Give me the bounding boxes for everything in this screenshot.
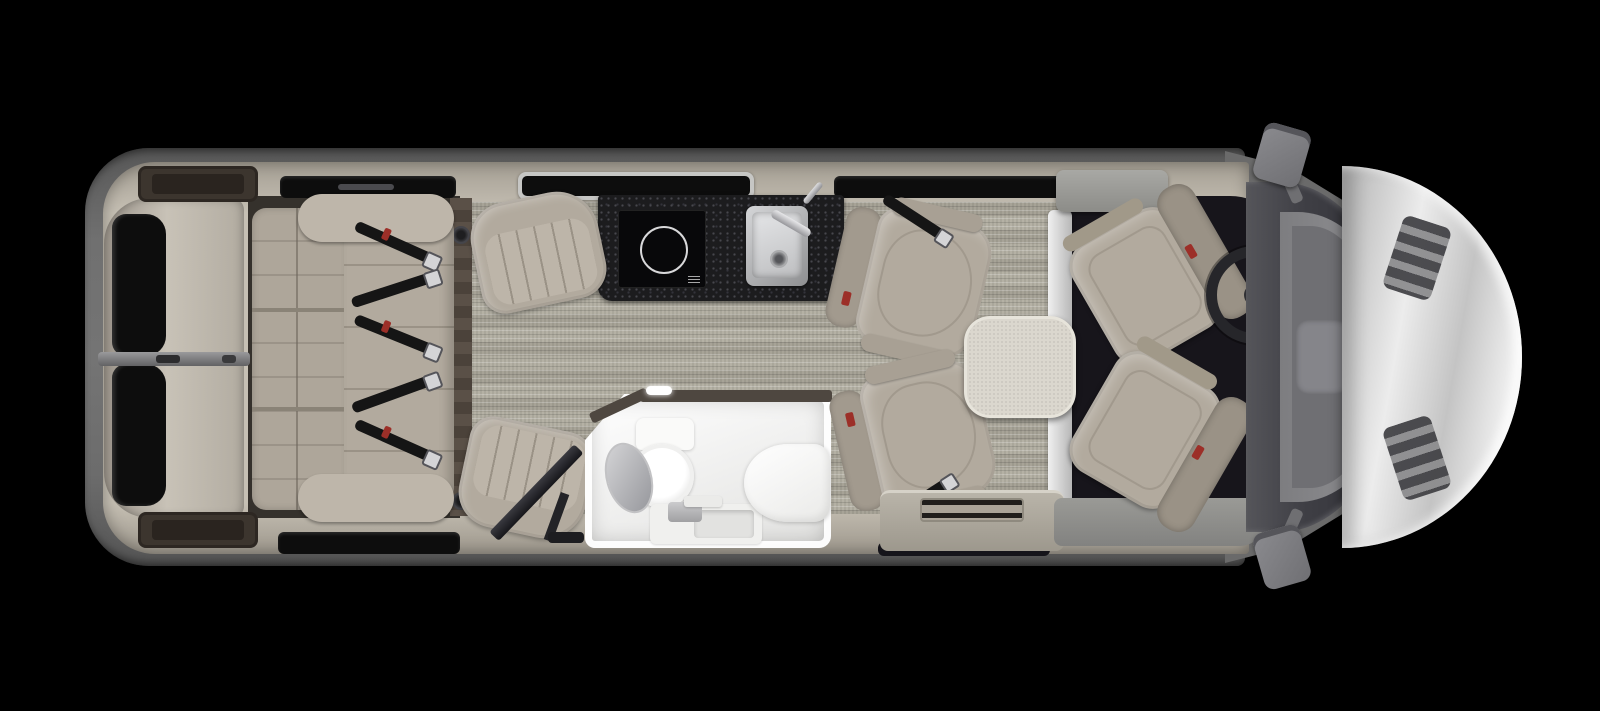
sofa-bolster-bottom	[298, 474, 454, 522]
bath-shelf	[684, 496, 722, 507]
bath-vanity-sink	[650, 504, 762, 544]
pedestal-table	[964, 316, 1076, 418]
sofa-backrest	[252, 208, 348, 510]
rear-window-bottom	[112, 364, 166, 506]
cooktop-label	[688, 276, 700, 285]
cooktop-burner-ring	[640, 226, 688, 274]
rear-door-divider-bar	[98, 352, 250, 366]
sink-drain	[770, 250, 788, 268]
window-bottom-left	[278, 532, 460, 554]
rear-cabinet-bottom	[138, 512, 258, 548]
rv-floorplan-image	[0, 0, 1600, 711]
tv-base	[548, 532, 584, 543]
bath-door-handle	[646, 386, 672, 395]
shower-bench	[744, 444, 830, 522]
rear-window-top	[112, 214, 166, 356]
step-grille	[920, 498, 1024, 522]
rear-cabinet-top	[138, 166, 258, 202]
